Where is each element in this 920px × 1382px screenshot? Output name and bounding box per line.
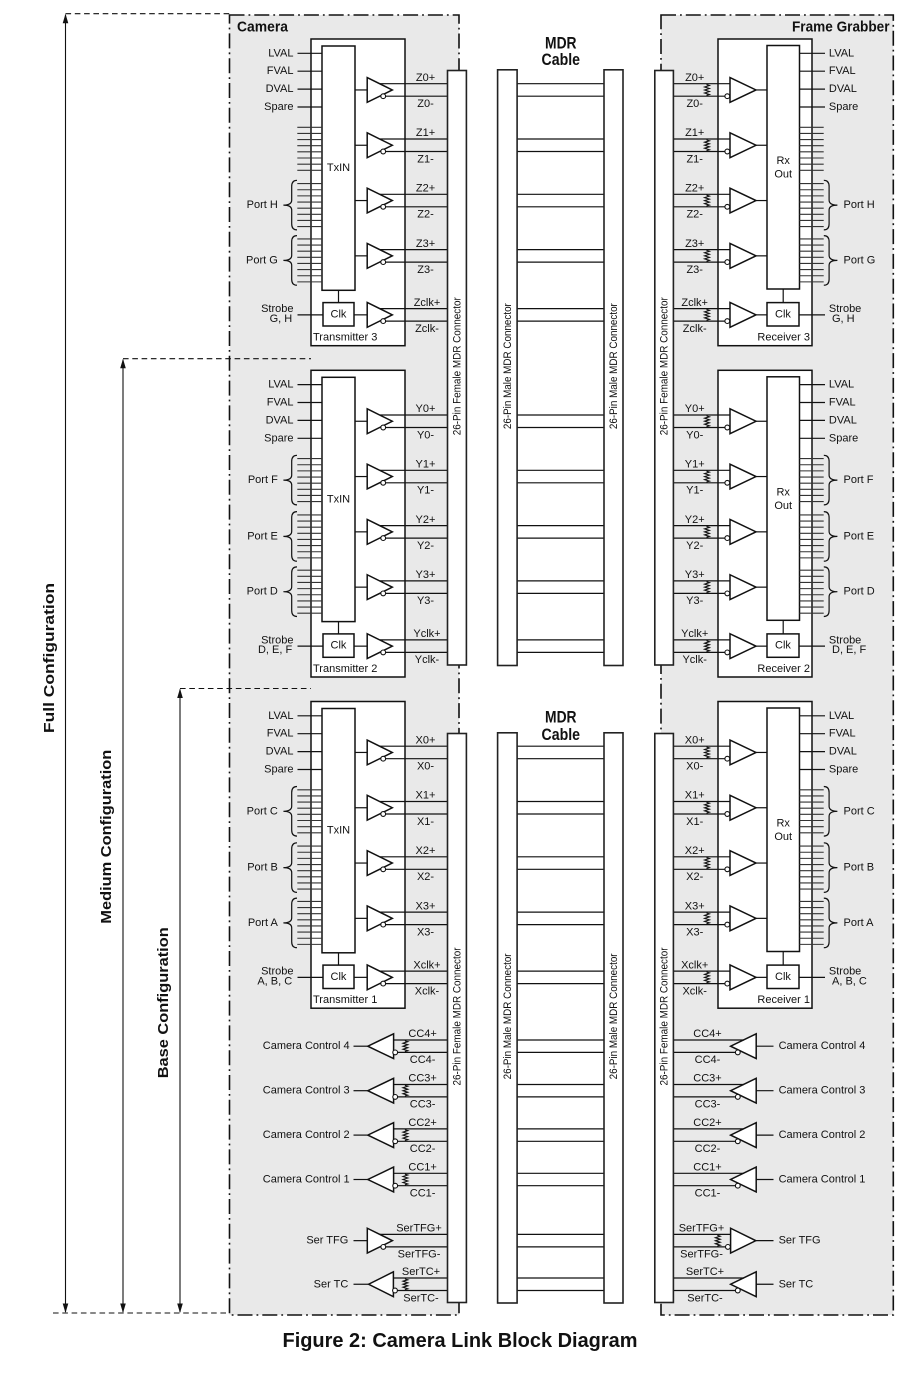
svg-text:Out: Out bbox=[774, 831, 792, 843]
svg-text:Camera Control 1: Camera Control 1 bbox=[263, 1174, 350, 1186]
svg-text:SerTFG+: SerTFG+ bbox=[396, 1223, 442, 1235]
svg-text:26-Pin Male MDR Connector: 26-Pin Male MDR Connector bbox=[502, 953, 514, 1079]
svg-text:Y2-: Y2- bbox=[417, 540, 434, 552]
svg-text:SerTC-: SerTC- bbox=[403, 1292, 439, 1304]
svg-text:Camera: Camera bbox=[237, 19, 289, 36]
svg-text:CC2+: CC2+ bbox=[408, 1117, 436, 1129]
svg-text:TxIN: TxIN bbox=[327, 825, 350, 837]
svg-text:Xclk+: Xclk+ bbox=[681, 959, 708, 971]
svg-text:X3+: X3+ bbox=[685, 900, 705, 912]
svg-text:Clk: Clk bbox=[775, 971, 791, 983]
svg-text:CC3-: CC3- bbox=[695, 1099, 721, 1111]
svg-text:Zclk-: Zclk- bbox=[683, 323, 707, 335]
svg-text:Z2+: Z2+ bbox=[685, 183, 704, 195]
svg-text:Port C: Port C bbox=[247, 805, 278, 817]
svg-text:DVAL: DVAL bbox=[266, 83, 294, 95]
svg-text:Zclk-: Zclk- bbox=[415, 323, 439, 335]
svg-text:Z3+: Z3+ bbox=[416, 238, 435, 250]
svg-text:Xclk-: Xclk- bbox=[415, 985, 440, 997]
svg-text:Z0+: Z0+ bbox=[416, 72, 435, 84]
svg-text:Spare: Spare bbox=[264, 101, 293, 113]
svg-text:Clk: Clk bbox=[331, 971, 347, 983]
svg-text:Z0-: Z0- bbox=[686, 98, 703, 110]
svg-text:Yclk+: Yclk+ bbox=[681, 628, 708, 640]
svg-text:Ser TFG: Ser TFG bbox=[306, 1235, 348, 1247]
svg-text:Camera Control 1: Camera Control 1 bbox=[779, 1174, 866, 1186]
svg-text:Y0-: Y0- bbox=[417, 429, 434, 441]
svg-text:Port E: Port E bbox=[247, 530, 278, 542]
svg-text:CC1-: CC1- bbox=[410, 1188, 436, 1200]
svg-text:Out: Out bbox=[774, 169, 792, 181]
svg-text:Transmitter 3: Transmitter 3 bbox=[313, 332, 377, 344]
svg-text:CC3-: CC3- bbox=[410, 1099, 436, 1111]
svg-text:Spare: Spare bbox=[829, 101, 858, 113]
svg-text:X0+: X0+ bbox=[416, 734, 436, 746]
svg-text:Xclk+: Xclk+ bbox=[413, 959, 440, 971]
svg-text:D, E, F: D, E, F bbox=[832, 644, 867, 656]
svg-text:X0+: X0+ bbox=[685, 734, 705, 746]
svg-text:CC4-: CC4- bbox=[410, 1054, 436, 1066]
svg-text:X2-: X2- bbox=[686, 871, 703, 883]
svg-text:DVAL: DVAL bbox=[266, 414, 294, 426]
svg-text:Z1+: Z1+ bbox=[416, 127, 435, 139]
svg-text:SerTFG-: SerTFG- bbox=[398, 1249, 441, 1261]
svg-text:FVAL: FVAL bbox=[267, 65, 294, 77]
svg-text:Medium Configuration: Medium Configuration bbox=[98, 750, 115, 924]
svg-text:Y0+: Y0+ bbox=[685, 403, 705, 415]
svg-text:Y1-: Y1- bbox=[417, 485, 434, 497]
svg-text:26-Pin Male MDR Connector: 26-Pin Male MDR Connector bbox=[608, 303, 620, 429]
svg-text:X3-: X3- bbox=[417, 926, 434, 938]
svg-text:Port B: Port B bbox=[247, 862, 278, 874]
svg-text:X3-: X3- bbox=[686, 926, 703, 938]
svg-text:Transmitter 1: Transmitter 1 bbox=[313, 994, 377, 1006]
svg-text:Z0-: Z0- bbox=[417, 98, 434, 110]
svg-text:DVAL: DVAL bbox=[829, 746, 857, 758]
svg-text:Out: Out bbox=[774, 500, 792, 512]
svg-text:Y3-: Y3- bbox=[686, 595, 703, 607]
svg-text:Clk: Clk bbox=[331, 308, 347, 320]
svg-text:FVAL: FVAL bbox=[829, 397, 856, 409]
svg-text:Z2+: Z2+ bbox=[416, 183, 435, 195]
svg-text:Frame Grabber: Frame Grabber bbox=[792, 19, 890, 36]
svg-text:Y2+: Y2+ bbox=[685, 514, 705, 526]
svg-text:Rx: Rx bbox=[776, 155, 790, 167]
svg-text:Rx: Rx bbox=[776, 818, 790, 830]
svg-text:Zclk+: Zclk+ bbox=[414, 297, 441, 309]
svg-text:X0-: X0- bbox=[686, 761, 703, 773]
svg-text:CC4+: CC4+ bbox=[693, 1028, 721, 1040]
svg-text:Y3+: Y3+ bbox=[416, 569, 436, 581]
svg-text:Z0+: Z0+ bbox=[685, 72, 704, 84]
svg-text:Clk: Clk bbox=[775, 640, 791, 652]
svg-text:TxIN: TxIN bbox=[327, 162, 350, 174]
svg-text:Clk: Clk bbox=[775, 308, 791, 320]
svg-text:Y3-: Y3- bbox=[417, 595, 434, 607]
svg-text:Port A: Port A bbox=[248, 917, 279, 929]
svg-text:FVAL: FVAL bbox=[829, 728, 856, 740]
svg-text:FVAL: FVAL bbox=[267, 728, 294, 740]
svg-text:Figure 2: Camera Link Block Di: Figure 2: Camera Link Block Diagram bbox=[283, 1330, 638, 1352]
svg-text:Z3-: Z3- bbox=[417, 264, 434, 276]
svg-text:FVAL: FVAL bbox=[829, 65, 856, 77]
svg-text:Port F: Port F bbox=[248, 474, 278, 486]
svg-text:CC3+: CC3+ bbox=[408, 1073, 436, 1085]
svg-text:SerTC+: SerTC+ bbox=[402, 1266, 440, 1278]
svg-text:Yclk-: Yclk- bbox=[682, 654, 707, 666]
svg-text:LVAL: LVAL bbox=[268, 710, 293, 722]
svg-text:Zclk+: Zclk+ bbox=[681, 297, 708, 309]
svg-text:X1+: X1+ bbox=[685, 790, 705, 802]
svg-text:Z1+: Z1+ bbox=[685, 127, 704, 139]
svg-text:CC4-: CC4- bbox=[695, 1054, 721, 1066]
svg-text:26-Pin Female MDR Connector: 26-Pin Female MDR Connector bbox=[451, 947, 463, 1085]
svg-text:X3+: X3+ bbox=[416, 900, 436, 912]
svg-text:Ser TFG: Ser TFG bbox=[779, 1235, 821, 1247]
svg-text:Y1+: Y1+ bbox=[416, 459, 436, 471]
svg-text:Z1-: Z1- bbox=[686, 153, 703, 165]
svg-text:Z2-: Z2- bbox=[686, 209, 703, 221]
svg-text:26-Pin Female MDR Connector: 26-Pin Female MDR Connector bbox=[659, 947, 671, 1085]
svg-text:G, H: G, H bbox=[270, 313, 293, 325]
svg-text:26-Pin Female MDR Connector: 26-Pin Female MDR Connector bbox=[451, 297, 463, 435]
svg-text:X2+: X2+ bbox=[416, 845, 436, 857]
svg-text:Y1-: Y1- bbox=[686, 485, 703, 497]
svg-text:CC2+: CC2+ bbox=[693, 1117, 721, 1129]
svg-text:D, E, F: D, E, F bbox=[258, 644, 293, 656]
svg-text:Rx: Rx bbox=[776, 487, 790, 499]
svg-text:Receiver 1: Receiver 1 bbox=[757, 994, 810, 1006]
svg-text:Ser TC: Ser TC bbox=[314, 1278, 349, 1290]
svg-text:Camera Control 3: Camera Control 3 bbox=[263, 1085, 350, 1097]
svg-text:Camera Control 2: Camera Control 2 bbox=[263, 1129, 350, 1141]
svg-text:Cable: Cable bbox=[542, 51, 581, 69]
svg-text:Y0+: Y0+ bbox=[416, 403, 436, 415]
svg-text:Yclk-: Yclk- bbox=[415, 654, 440, 666]
svg-text:G, H: G, H bbox=[832, 313, 855, 325]
svg-text:MDR: MDR bbox=[545, 35, 577, 53]
svg-text:Camera Control 4: Camera Control 4 bbox=[779, 1040, 866, 1052]
svg-text:Spare: Spare bbox=[264, 432, 293, 444]
svg-text:Y1+: Y1+ bbox=[685, 459, 705, 471]
svg-text:Port G: Port G bbox=[844, 254, 876, 266]
svg-text:Y3+: Y3+ bbox=[685, 569, 705, 581]
svg-text:Transmitter 2: Transmitter 2 bbox=[313, 663, 377, 675]
svg-text:Z3+: Z3+ bbox=[685, 238, 704, 250]
svg-text:26-Pin Male MDR Connector: 26-Pin Male MDR Connector bbox=[502, 303, 514, 429]
svg-text:LVAL: LVAL bbox=[829, 379, 854, 391]
svg-text:CC2-: CC2- bbox=[695, 1143, 721, 1155]
svg-text:Spare: Spare bbox=[829, 432, 858, 444]
svg-text:A, B, C: A, B, C bbox=[257, 975, 292, 987]
svg-text:Receiver 3: Receiver 3 bbox=[757, 332, 810, 344]
svg-text:DVAL: DVAL bbox=[266, 746, 294, 758]
svg-text:Port H: Port H bbox=[247, 199, 278, 211]
svg-text:Z3-: Z3- bbox=[686, 264, 703, 276]
svg-text:Camera Control 4: Camera Control 4 bbox=[263, 1040, 350, 1052]
svg-text:Y2-: Y2- bbox=[686, 540, 703, 552]
svg-text:Port F: Port F bbox=[844, 474, 874, 486]
svg-text:LVAL: LVAL bbox=[268, 47, 293, 59]
svg-text:CC1+: CC1+ bbox=[408, 1162, 436, 1174]
svg-text:Receiver 2: Receiver 2 bbox=[757, 663, 810, 675]
svg-text:26-Pin Female MDR Connector: 26-Pin Female MDR Connector bbox=[659, 297, 671, 435]
svg-text:SerTC+: SerTC+ bbox=[686, 1266, 724, 1278]
svg-text:Port D: Port D bbox=[844, 586, 875, 598]
svg-text:Port B: Port B bbox=[844, 862, 875, 874]
svg-text:LVAL: LVAL bbox=[268, 379, 293, 391]
svg-text:SerTFG-: SerTFG- bbox=[680, 1249, 723, 1261]
svg-text:Cable: Cable bbox=[542, 726, 581, 744]
svg-text:X0-: X0- bbox=[417, 761, 434, 773]
svg-text:CC1+: CC1+ bbox=[693, 1162, 721, 1174]
svg-text:Clk: Clk bbox=[331, 640, 347, 652]
svg-text:Camera Control 2: Camera Control 2 bbox=[779, 1129, 866, 1141]
svg-text:Y0-: Y0- bbox=[686, 429, 703, 441]
svg-text:FVAL: FVAL bbox=[267, 397, 294, 409]
svg-text:CC3+: CC3+ bbox=[693, 1073, 721, 1085]
svg-text:CC1-: CC1- bbox=[695, 1188, 721, 1200]
svg-text:MDR: MDR bbox=[545, 709, 577, 727]
svg-text:CC2-: CC2- bbox=[410, 1143, 436, 1155]
svg-text:Port H: Port H bbox=[844, 199, 875, 211]
svg-text:X1-: X1- bbox=[686, 816, 703, 828]
svg-text:X2+: X2+ bbox=[685, 845, 705, 857]
svg-text:Spare: Spare bbox=[829, 764, 858, 776]
svg-text:Port G: Port G bbox=[246, 254, 278, 266]
svg-text:26-Pin Male MDR Connector: 26-Pin Male MDR Connector bbox=[608, 953, 620, 1079]
svg-text:TxIN: TxIN bbox=[327, 494, 350, 506]
svg-text:CC4+: CC4+ bbox=[408, 1028, 436, 1040]
svg-text:X1-: X1- bbox=[417, 816, 434, 828]
svg-text:Port C: Port C bbox=[844, 805, 875, 817]
svg-text:Z2-: Z2- bbox=[417, 209, 434, 221]
svg-text:Spare: Spare bbox=[264, 764, 293, 776]
svg-text:Ser TC: Ser TC bbox=[779, 1278, 814, 1290]
svg-text:Base Configuration: Base Configuration bbox=[155, 927, 172, 1078]
svg-text:SerTC-: SerTC- bbox=[687, 1292, 723, 1304]
svg-text:LVAL: LVAL bbox=[829, 710, 854, 722]
svg-text:Xclk-: Xclk- bbox=[682, 985, 707, 997]
svg-text:A, B, C: A, B, C bbox=[832, 975, 867, 987]
svg-text:LVAL: LVAL bbox=[829, 47, 854, 59]
svg-text:SerTFG+: SerTFG+ bbox=[679, 1223, 725, 1235]
svg-text:Full Configuration: Full Configuration bbox=[41, 583, 58, 733]
svg-text:Y2+: Y2+ bbox=[416, 514, 436, 526]
svg-text:Port E: Port E bbox=[844, 530, 875, 542]
svg-text:Yclk+: Yclk+ bbox=[413, 628, 440, 640]
svg-text:X2-: X2- bbox=[417, 871, 434, 883]
svg-text:Z1-: Z1- bbox=[417, 153, 434, 165]
svg-text:DVAL: DVAL bbox=[829, 414, 857, 426]
svg-text:Port D: Port D bbox=[247, 586, 278, 598]
svg-text:DVAL: DVAL bbox=[829, 83, 857, 95]
svg-text:X1+: X1+ bbox=[416, 790, 436, 802]
svg-text:Port A: Port A bbox=[844, 917, 875, 929]
svg-text:Camera Control 3: Camera Control 3 bbox=[779, 1085, 866, 1097]
